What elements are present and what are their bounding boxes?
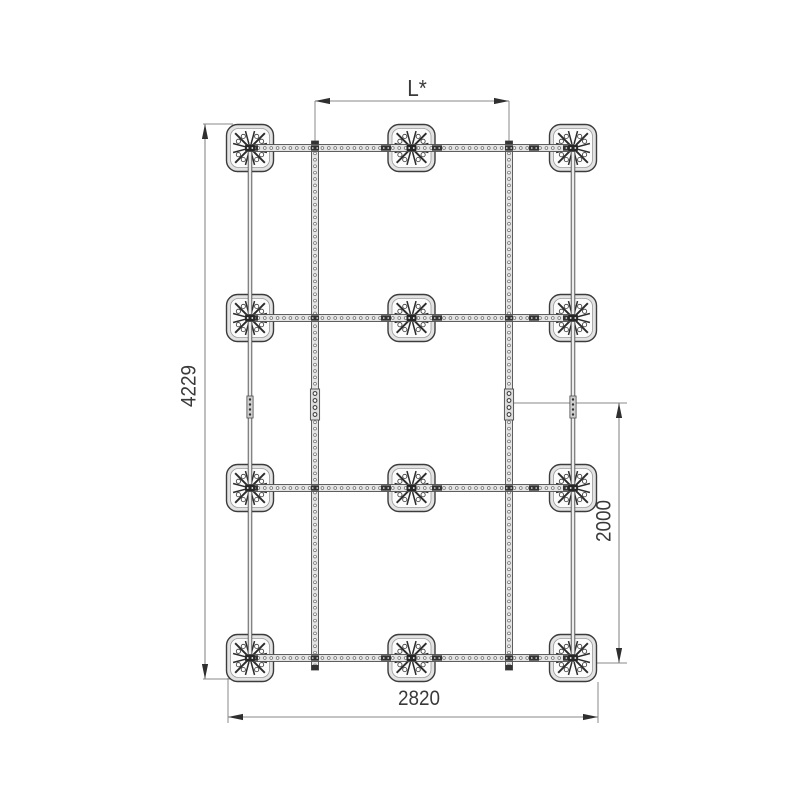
vertical-rail [504,141,513,670]
plate-centre-fixing [407,145,417,151]
rail-connector-bracket [381,485,391,490]
dimension-arrow-left [315,98,330,104]
rail-connector-bracket [381,145,391,150]
plate-centre-fixing [245,485,255,491]
rail-connector-bracket [432,145,442,150]
dimension-arrow-left [228,714,243,720]
dimension-arrow-up [202,124,208,139]
dimension-label-left: 4229 [177,365,200,407]
vertical-edge-post [570,148,576,658]
plate-centre-fixing [407,485,417,491]
vertical-rail [310,141,319,670]
foundation-plan-drawing: L*422920002820 [0,0,800,800]
plate-centre-fixing [245,315,255,321]
rail-connector-bracket [432,655,442,660]
plate-centre-fixing [568,145,578,151]
rail-connector-bracket [432,315,442,320]
rail-connector-bracket [529,485,539,490]
vertical-rails [310,141,513,670]
plate-centre-fixing [245,145,255,151]
dimension-label-top: L* [407,75,427,101]
plate-centre-fixing [568,315,578,321]
dimension-label-bottom: 2820 [398,687,440,710]
rail-connector-bracket [529,145,539,150]
dimension-bottom: 2820 [228,678,598,723]
vertical-edge-post [247,148,253,658]
dimension-left: 4229 [177,124,233,679]
dimension-arrow-up [616,403,622,418]
plate-centre-fixing [407,655,417,661]
rail-connector-bracket [381,655,391,660]
rail-connector-bracket [529,655,539,660]
dimension-arrow-down [202,664,208,679]
dimension-arrow-down [616,648,622,663]
plate-centre-fixing [568,655,578,661]
plate-centre-fixing [245,655,255,661]
dimension-right: 2000 [512,403,627,663]
drawing-canvas: L*422920002820 [0,0,800,800]
plate-centre-fixing [568,485,578,491]
rail-connector-bracket [432,485,442,490]
dimension-arrow-right [494,98,509,104]
rail-connector-bracket [381,315,391,320]
plate-centre-fixing [407,315,417,321]
dimension-arrow-right [583,714,598,720]
dimension-label-right: 2000 [592,500,615,542]
rail-connector-bracket [529,315,539,320]
